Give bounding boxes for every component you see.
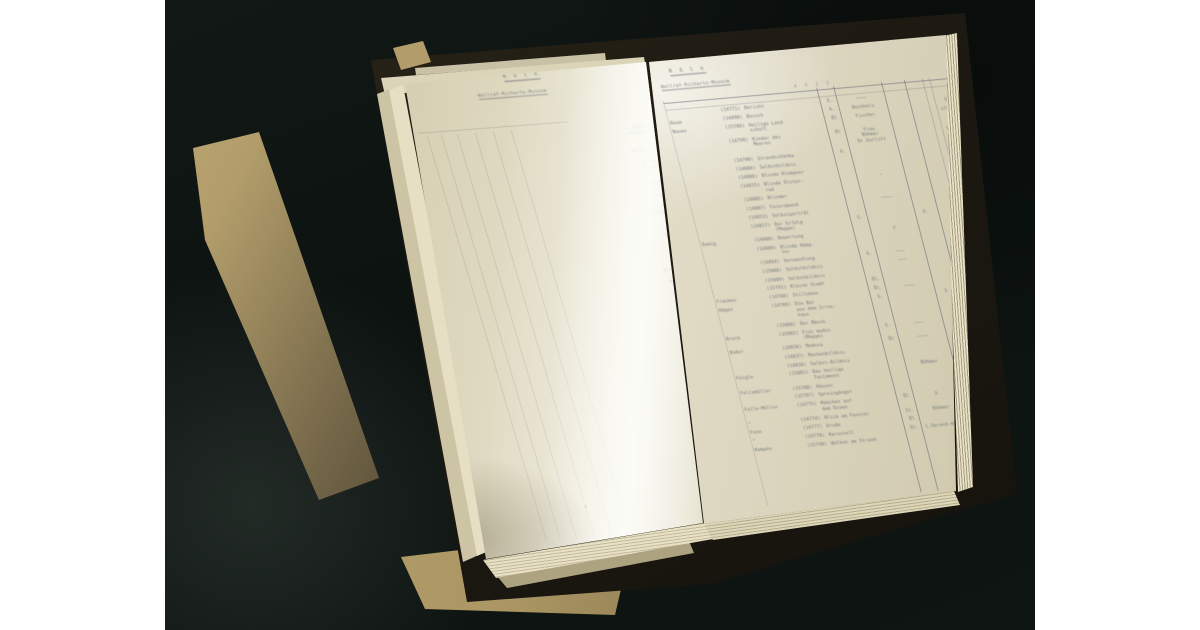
- archive-photo: K ö l n Wallraf-Richartz-Museum Abstrakt…: [165, 0, 1035, 630]
- column-marks: 4 2 2 2: [794, 80, 833, 88]
- right-page-subtitle: Wallraf-Richartz-Museum: [661, 79, 731, 91]
- left-page-subtitle: Wallraf-Richartz-Museum: [478, 89, 548, 100]
- right-page-title: K ö l n: [669, 65, 707, 76]
- left-page-number: - 4 -: [574, 504, 599, 511]
- photo-canvas: K ö l n Wallraf-Richartz-Museum Abstrakt…: [0, 0, 1200, 630]
